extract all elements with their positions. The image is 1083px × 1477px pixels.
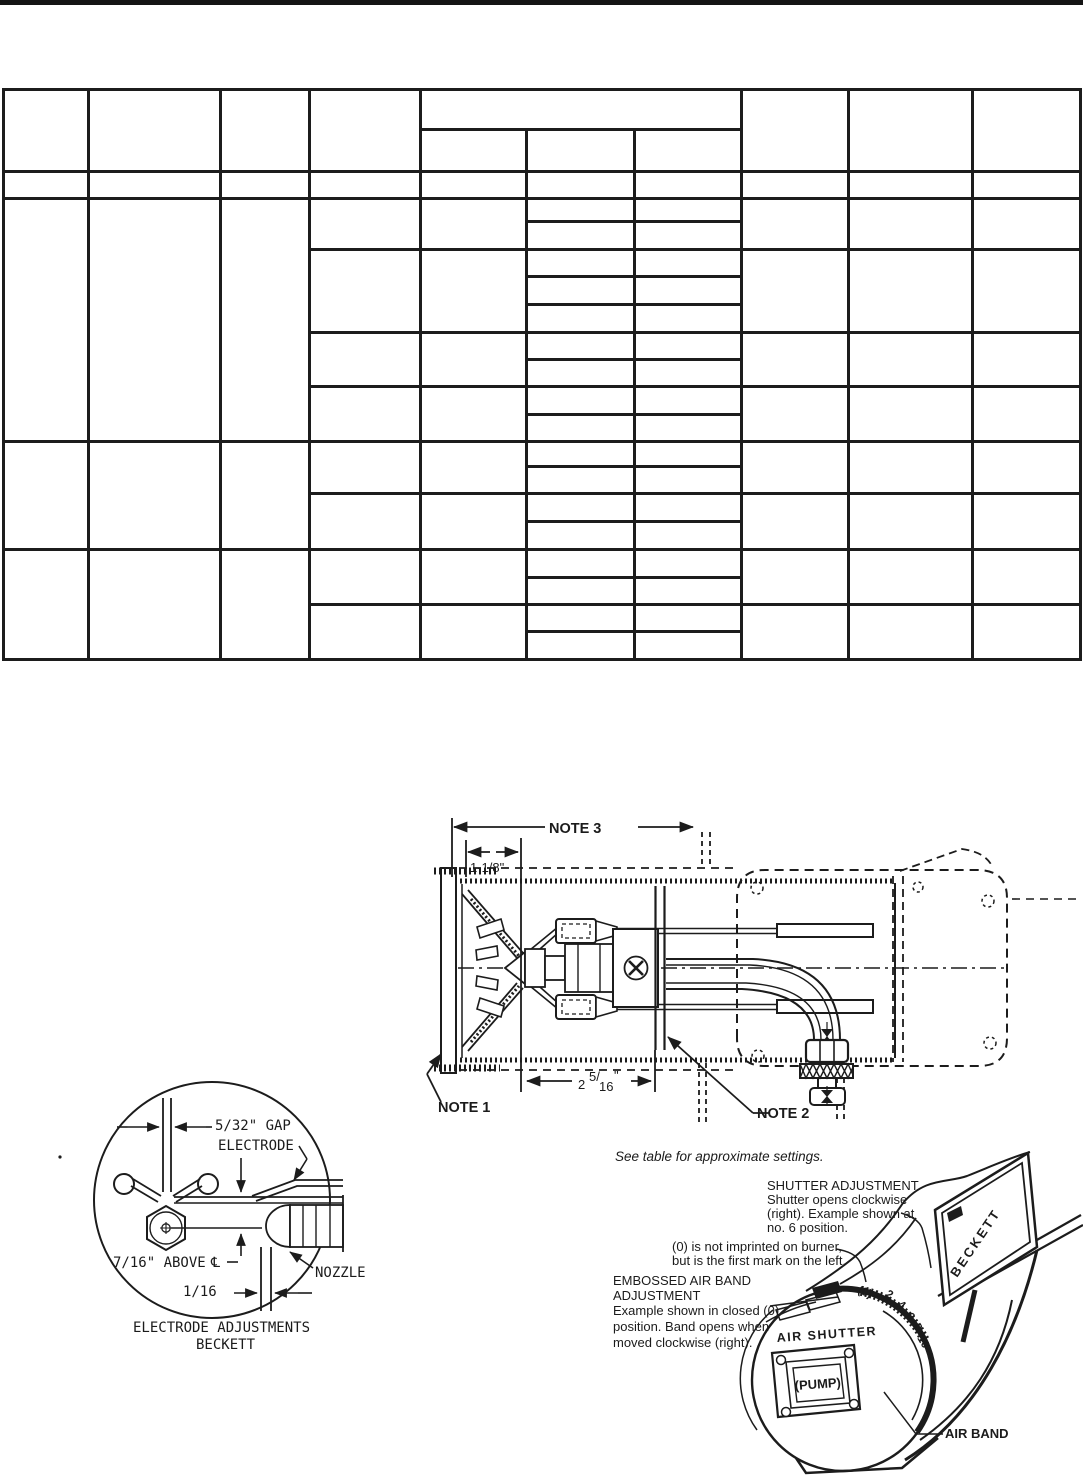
note1-label: NOTE 1: [438, 1100, 490, 1116]
svg-text:Shutter opens clockwise: Shutter opens clockwise: [767, 1192, 907, 1207]
svg-text:position. Band opens when: position. Band opens when: [613, 1319, 769, 1334]
air-shutter-label: AIR SHUTTER: [776, 1324, 877, 1345]
insertion-depth-unit: ": [614, 1068, 619, 1083]
nozzle-label: NOZZLE: [315, 1265, 366, 1281]
fuel-pipe: [666, 959, 853, 1105]
above-label: 7/16" ABOVE: [113, 1255, 206, 1271]
insertion-depth-dimension: 2 5/ 16 ": [527, 1050, 655, 1094]
insertion-depth-whole: 2: [578, 1077, 585, 1092]
burner-perspective-view: BECKETT (0) 2 4 6 8 1: [613, 1152, 1083, 1473]
gap-label: 5/32" GAP: [215, 1118, 291, 1134]
svg-text:moved clockwise (right).: moved clockwise (right).: [613, 1335, 752, 1350]
note2-label: NOTE 2: [757, 1106, 809, 1122]
centerline-symbol: ℄: [210, 1255, 220, 1271]
see-table-note: See table for approximate settings.: [615, 1149, 824, 1164]
insertion-depth-sub: 16: [599, 1079, 613, 1094]
air-band-callout: AIR BAND: [884, 1392, 1009, 1441]
dial-label-0: (0): [856, 1285, 873, 1301]
beckett-nameplate: BECKETT: [935, 1153, 1037, 1305]
note1-callout: NOTE 1: [427, 1054, 490, 1116]
airband-heading1: EMBOSSED AIR BAND: [613, 1273, 751, 1288]
head-depth-label: 1-1/8": [470, 860, 505, 875]
sixteenth-label: 1/16: [183, 1284, 217, 1300]
detail-circle: [94, 1082, 330, 1318]
svg-text:(0) is not imprinted on burner: (0) is not imprinted on burner,: [672, 1239, 842, 1254]
electrode-callout: ELECTRODE: [218, 1138, 307, 1180]
detail-caption-line1: ELECTRODE ADJUSTMENTS: [133, 1320, 310, 1336]
svg-text:Example shown in closed (0): Example shown in closed (0): [613, 1303, 779, 1318]
shutter-heading: SHUTTER ADJUSTMENT: [767, 1178, 919, 1193]
scanned-manual-page: NOTE 3 1-1/8" 2 5/ 16 ": [0, 0, 1083, 1477]
detail-caption-line2: BECKETT: [196, 1337, 256, 1353]
stray-dot: [58, 1155, 61, 1158]
svg-text:(right). Example shown at: (right). Example shown at: [767, 1206, 915, 1221]
electrode-label: ELECTRODE: [218, 1138, 294, 1154]
electrode-adjustment-detail: 5/32" GAP ELECTRODE 7/16" ABOVE ℄: [58, 1082, 365, 1353]
pump-mount: (PUMP): [772, 1345, 860, 1417]
svg-text:no. 6 position.: no. 6 position.: [767, 1220, 848, 1235]
airband-heading2: ADJUSTMENT: [613, 1288, 700, 1303]
svg-text:but is the first mark on the l: but is the first mark on the left.: [672, 1253, 846, 1268]
diagrams-overlay: NOTE 3 1-1/8" 2 5/ 16 ": [0, 0, 1083, 1477]
gap-dimension: 5/32" GAP: [117, 1118, 291, 1134]
burner-top-view-diagram: NOTE 3 1-1/8" 2 5/ 16 ": [427, 818, 1078, 1164]
note3-label: NOTE 3: [549, 821, 601, 837]
air-band-label: AIR BAND: [945, 1426, 1009, 1441]
